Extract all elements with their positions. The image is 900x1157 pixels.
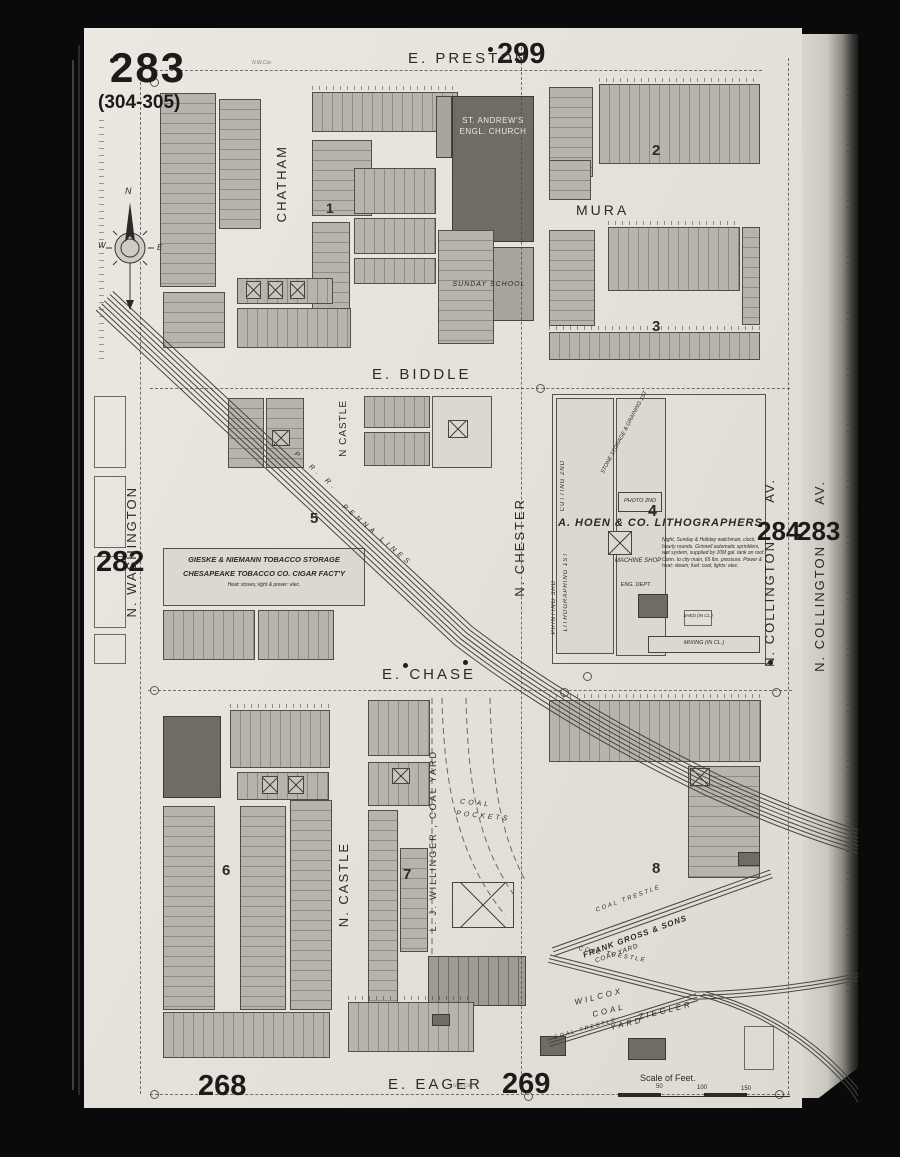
street-label-biddle: E. BIDDLE (372, 366, 472, 383)
block-number-7: 7 (403, 866, 411, 883)
rowhouse-block (364, 396, 430, 428)
hoen-title: A. HOEN & CO. LITHOGRAPHERS (558, 517, 766, 529)
rowhouse-block (348, 1002, 474, 1052)
compass-n: N (125, 186, 132, 196)
rowhouse-block (163, 1012, 330, 1058)
rowhouse-block (742, 227, 760, 325)
willinger-coal-yard-label: L. J. WILLINGER , COAL YARD (428, 750, 438, 931)
shed-crossed-box (268, 281, 283, 299)
utility-symbol (150, 1090, 159, 1099)
margin-number-ticks (99, 120, 104, 360)
street-label-castle-lower: N. CASTLE (336, 842, 351, 927)
lot-outline (94, 396, 126, 468)
rowhouse-block (400, 848, 428, 952)
rowhouse-block (163, 292, 225, 348)
map-dot (463, 660, 468, 665)
street-label-preston: E. PRESTON (408, 50, 529, 67)
shed-crossed-box (288, 776, 304, 794)
page-stack-edge (72, 60, 74, 1090)
rowhouse-block (549, 700, 761, 762)
hoen-photo-label: PHOTO 2ND (620, 498, 660, 504)
rowhouse-block (240, 806, 286, 1010)
shed-crossed-box (690, 768, 710, 786)
rowhouse-block (354, 258, 436, 284)
block-number-5: 5 (310, 510, 318, 527)
small-building (540, 1036, 566, 1056)
compass-e: E (157, 243, 162, 252)
street-centerline (148, 690, 792, 691)
utility-symbol (772, 688, 781, 697)
block-number-1: 1 (326, 200, 334, 216)
rowhouse-block (354, 218, 436, 254)
street-label-castle-upper: N CASTLE (338, 400, 349, 457)
hoen-printing-label: PRINTING 3RD (551, 580, 557, 634)
small-building (738, 852, 760, 866)
gieske-label: GIESKE & NIEMANN TOBACCO STORAGE (168, 555, 360, 564)
house-number-ticks (312, 86, 458, 90)
house-number-ticks (549, 694, 761, 698)
rowhouse-block (219, 99, 261, 229)
street-label-collington-av: AV. (762, 478, 777, 503)
rowhouse-block (549, 160, 591, 200)
gieske-note: Heat: stoves; light & power: elec. (168, 582, 360, 588)
house-number-ticks (608, 221, 740, 225)
scale-tick-100: 100 (697, 1085, 707, 1091)
chesapeake-label: CHESAPEAKE TOBACCO CO. CIGAR FACT'Y (168, 569, 360, 578)
rowhouse-block (599, 84, 760, 164)
scale-tick-150: 150 (741, 1086, 751, 1092)
shed-crossed-box (262, 776, 278, 794)
shed-crossed-box (392, 768, 410, 784)
hoen-eng-label: ENG. DEPT. (612, 582, 660, 588)
rowhouse-block (258, 610, 334, 660)
street-label-mura: MURA (576, 202, 629, 218)
house-number-ticks (230, 704, 330, 708)
page-stack-edge (78, 45, 80, 1095)
utility-symbol (560, 688, 569, 697)
lot-outline (94, 476, 126, 548)
small-building (432, 1014, 450, 1026)
map-scan-canvas: 283 (304-305) 299 282 284 283 268 269 E.… (0, 0, 900, 1157)
adjacent-page-number: 283 (797, 516, 840, 547)
street-label-collington-2: N. COLLINGTON (812, 545, 827, 672)
utility-symbol (150, 686, 159, 695)
house-number-ticks (599, 78, 760, 82)
scale-tick-50: 50 (656, 1084, 663, 1090)
lot-outline (744, 1026, 774, 1070)
sunday-school-label: SUNDAY SCHOOL (447, 281, 531, 288)
hoen-note: Night, Sunday & Holiday watchman, clock,… (662, 537, 766, 570)
street-centerline (150, 388, 790, 389)
crossed-structure (608, 531, 632, 555)
street-centerline (788, 58, 789, 1094)
rowhouse-block (354, 168, 436, 214)
scale-bar-segment (618, 1093, 661, 1096)
church-building (163, 716, 221, 798)
rowhouse-block (163, 610, 255, 660)
block-number-2: 2 (652, 142, 660, 159)
boiler-house (638, 594, 668, 618)
street-centerline (150, 70, 762, 71)
scale-label: Scale of Feet. (640, 1073, 696, 1083)
corner-note: N.W.Cor. (252, 60, 272, 66)
rowhouse-block (228, 398, 264, 468)
adjacent-page-number: 268 (198, 1070, 246, 1103)
street-label-chatham: CHATHAM (274, 145, 289, 222)
rowhouse-block (549, 230, 595, 326)
scale-bar-segment (704, 1093, 747, 1096)
rowhouse-block (608, 227, 740, 291)
shed-crossed-box (448, 420, 468, 438)
hoen-mixing-label: MIXING (IN CL.) (650, 640, 758, 646)
street-label-washington: N. WASHINGTON (124, 486, 139, 617)
rowhouse-block (163, 806, 215, 1010)
hoen-machine-label: MACHINE SHOP (614, 558, 662, 564)
building (436, 96, 452, 158)
corner-note: N.W.Cor. (453, 1083, 473, 1089)
church-name-line1: ST. ANDREW'S (452, 116, 534, 125)
rowhouse-block (549, 332, 760, 360)
rowhouse-block (230, 710, 330, 768)
page-number-alt: (304-305) (98, 92, 180, 114)
compass-w: W (98, 241, 106, 250)
rowhouse-block (368, 700, 430, 756)
rowhouse-block (237, 308, 351, 348)
coal-yard-crossed-structure (452, 882, 514, 928)
street-label-collington-2-av: AV. (812, 480, 827, 505)
rowhouse-block (160, 93, 216, 287)
hoen-shed-label: SHED (IN CL.) (682, 613, 714, 618)
rowhouse-block (368, 810, 398, 1006)
street-label-chase: E. CHASE (382, 666, 476, 683)
shed-crossed-box (246, 281, 261, 299)
block-number-8: 8 (652, 860, 660, 877)
small-building (628, 1038, 666, 1060)
church-name-line2: ENGL. CHURCH (452, 127, 534, 136)
adjacent-page-number: 269 (502, 1068, 550, 1101)
block-number-6: 6 (222, 862, 230, 879)
margin-number-ticks (846, 60, 851, 1040)
page-number-main: 283 (110, 44, 186, 92)
rowhouse-block (237, 772, 329, 800)
rowhouse-block (290, 800, 332, 1010)
shed-crossed-box (272, 430, 290, 446)
utility-symbol (583, 672, 592, 681)
house-number-ticks (348, 996, 474, 1000)
utility-symbol (536, 384, 545, 393)
rowhouse-block (364, 432, 430, 466)
hoen-cutting-label: CUTTING 2ND (560, 460, 566, 511)
shed-crossed-box (290, 281, 305, 299)
hoen-litho-label: LITHOGRAPHING 1ST (563, 552, 569, 631)
lot-outline (94, 634, 126, 664)
street-label-chester: N. CHESTER (512, 498, 527, 597)
block-number-3: 3 (652, 318, 660, 335)
